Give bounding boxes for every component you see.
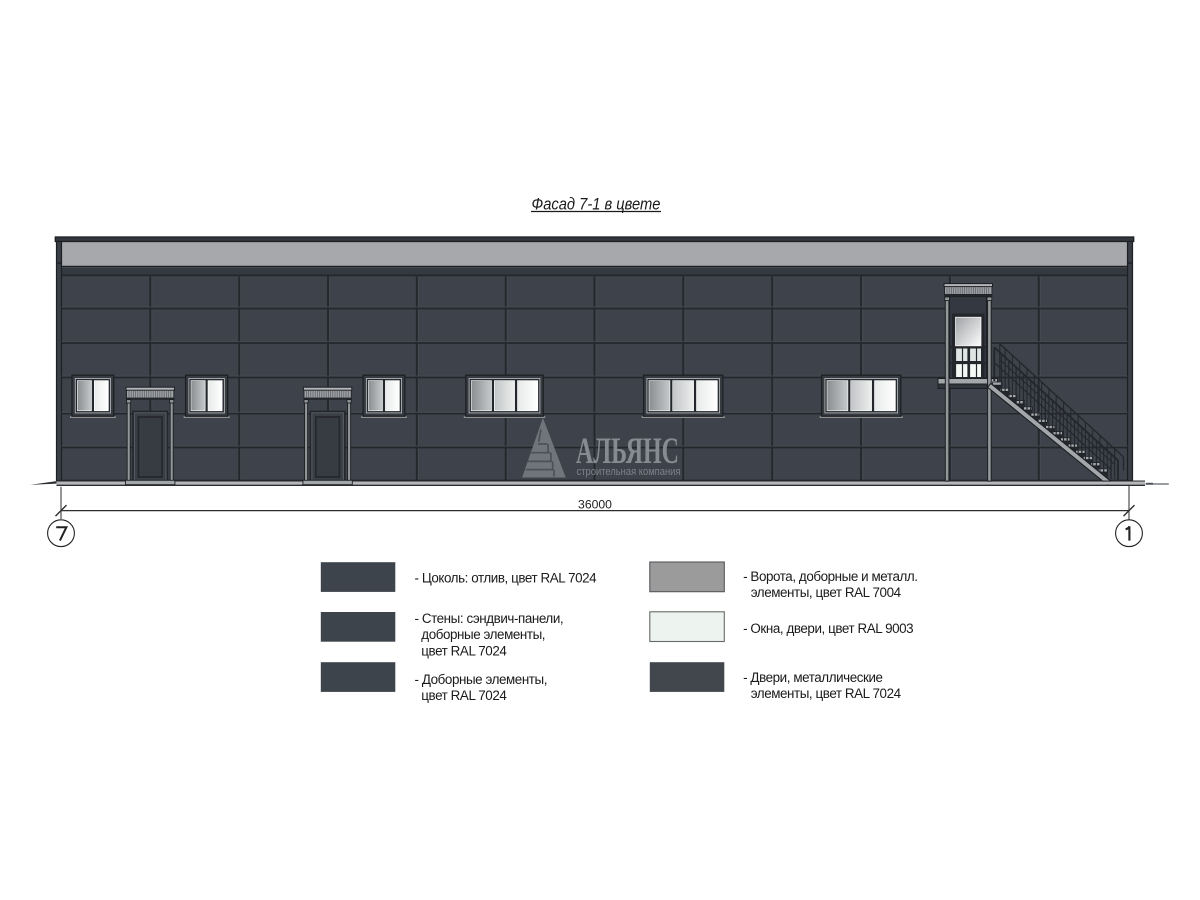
svg-text:- Цоколь: отлив, цвет RAL 7024: - Цоколь: отлив, цвет RAL 7024: [415, 570, 598, 585]
svg-text:- Стены: сэндвич-панели,: - Стены: сэндвич-панели,: [415, 611, 564, 626]
svg-text:- Двери, металлические: - Двери, металлические: [743, 670, 882, 685]
svg-text:элементы, цвет RAL 7024: элементы, цвет RAL 7024: [751, 686, 902, 701]
svg-text:- Доборные элементы,: - Доборные элементы,: [415, 672, 548, 687]
svg-text:элементы, цвет RAL 7004: элементы, цвет RAL 7004: [751, 585, 902, 600]
svg-text:строительная компания: строительная компания: [577, 466, 681, 478]
svg-text:Фасад 7-1 в цвете: Фасад 7-1 в цвете: [532, 195, 661, 214]
svg-text:- Окна, двери, цвет RAL 9003: - Окна, двери, цвет RAL 9003: [743, 621, 913, 636]
svg-text:36000: 36000: [578, 497, 612, 511]
svg-text:- Ворота, доборные и металл.: - Ворота, доборные и металл.: [743, 569, 917, 584]
svg-text:доборные элементы,: доборные элементы,: [421, 627, 545, 642]
svg-text:цвет RAL 7024: цвет RAL 7024: [421, 643, 507, 658]
svg-text:цвет RAL 7024: цвет RAL 7024: [421, 688, 507, 703]
